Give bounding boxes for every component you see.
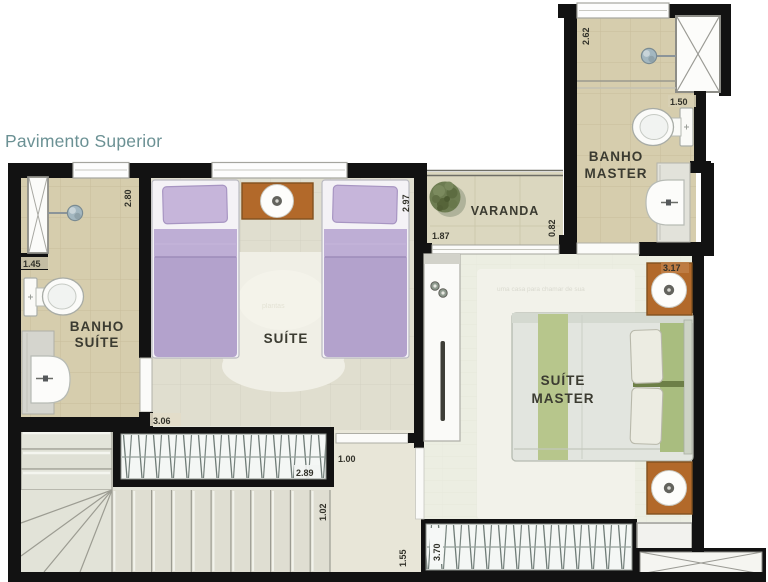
svg-text:MASTER: MASTER: [532, 391, 595, 406]
svg-text:VARANDA: VARANDA: [471, 204, 540, 218]
svg-text:MASTER: MASTER: [585, 166, 648, 181]
svg-text:2.97: 2.97: [401, 194, 411, 212]
svg-text:1.45: 1.45: [23, 259, 41, 269]
svg-text:1.02: 1.02: [318, 503, 328, 521]
svg-text:1.00: 1.00: [338, 454, 356, 464]
svg-text:3.70: 3.70: [432, 543, 442, 561]
svg-text:2.80: 2.80: [123, 189, 133, 207]
svg-text:1.55: 1.55: [398, 549, 408, 567]
svg-text:plantas: plantas: [262, 303, 285, 310]
svg-text:3.17: 3.17: [663, 263, 681, 273]
svg-text:BANHO: BANHO: [589, 149, 644, 164]
svg-text:SUÍTE: SUÍTE: [541, 373, 586, 388]
svg-text:SUÍTE: SUÍTE: [75, 335, 120, 350]
svg-text:0.82: 0.82: [547, 219, 557, 237]
svg-text:3.06: 3.06: [153, 416, 171, 426]
svg-text:BANHO: BANHO: [70, 319, 125, 334]
svg-text:1.50: 1.50: [670, 97, 688, 107]
svg-text:1.87: 1.87: [432, 231, 450, 241]
svg-text:SUÍTE: SUÍTE: [264, 331, 309, 346]
svg-text:Pavimento Superior: Pavimento Superior: [5, 131, 162, 151]
svg-text:2.89: 2.89: [296, 468, 314, 478]
svg-text:uma casa para chamar de sua: uma casa para chamar de sua: [497, 286, 585, 293]
svg-text:2.62: 2.62: [581, 27, 591, 45]
